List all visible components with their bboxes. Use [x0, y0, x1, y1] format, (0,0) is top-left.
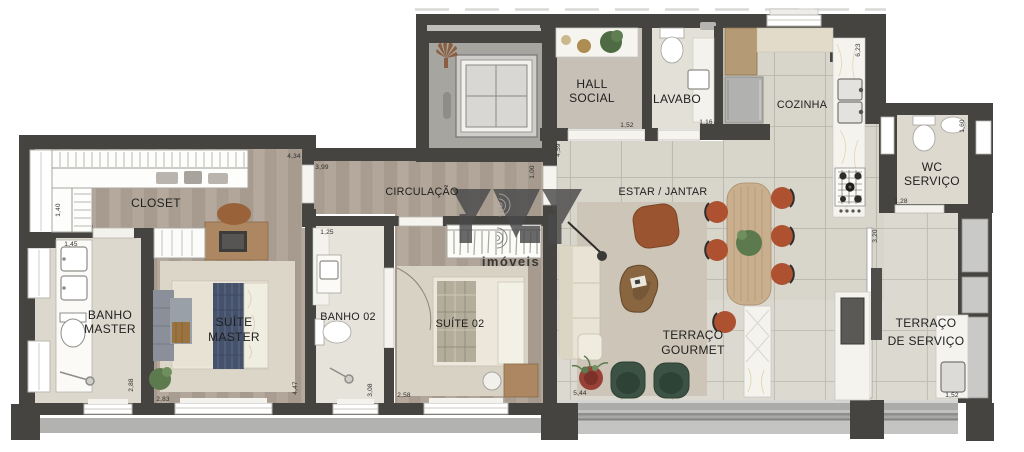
svg-text:DE SERVIÇO: DE SERVIÇO	[888, 334, 965, 348]
svg-text:GOURMET: GOURMET	[661, 343, 725, 357]
svg-text:4,34: 4,34	[287, 153, 301, 160]
svg-text:imóveis: imóveis	[482, 254, 540, 269]
svg-text:5,44: 5,44	[573, 390, 587, 397]
svg-text:2,88: 2,88	[128, 378, 135, 392]
svg-text:1,28: 1,28	[894, 198, 908, 205]
svg-text:TERRAÇO: TERRAÇO	[896, 316, 957, 330]
svg-text:1,52: 1,52	[620, 122, 634, 129]
svg-text:1,16: 1,16	[699, 119, 713, 126]
svg-text:2,58: 2,58	[397, 392, 411, 399]
svg-text:HALL: HALL	[576, 77, 607, 91]
svg-text:TERRAÇO: TERRAÇO	[663, 328, 724, 342]
svg-text:COZINHA: COZINHA	[777, 99, 828, 111]
svg-text:1,25: 1,25	[320, 229, 334, 236]
svg-text:4,59: 4,59	[555, 143, 562, 157]
svg-text:MASTER: MASTER	[84, 322, 136, 336]
svg-text:BANHO 02: BANHO 02	[320, 311, 375, 323]
svg-text:1,45: 1,45	[64, 241, 78, 248]
svg-text:BANHO: BANHO	[88, 308, 132, 322]
svg-text:3,20: 3,20	[872, 229, 879, 243]
svg-text:1,00: 1,00	[529, 165, 536, 179]
svg-text:SUÍTE 02: SUÍTE 02	[436, 317, 485, 330]
svg-text:1,40: 1,40	[55, 203, 62, 217]
svg-text:1,60: 1,60	[959, 119, 966, 133]
svg-text:3,08: 3,08	[367, 383, 374, 397]
svg-text:WC: WC	[922, 160, 943, 174]
svg-text:CLOSET: CLOSET	[131, 196, 181, 210]
svg-text:2,83: 2,83	[156, 396, 170, 403]
svg-text:4,47: 4,47	[292, 381, 299, 395]
svg-text:MASTER: MASTER	[208, 330, 260, 344]
svg-text:6,23: 6,23	[855, 43, 862, 57]
svg-text:LAVABO: LAVABO	[653, 92, 701, 106]
svg-text:1,52: 1,52	[945, 392, 959, 399]
svg-text:SOCIAL: SOCIAL	[569, 91, 615, 105]
svg-text:SUÍTE: SUÍTE	[216, 314, 253, 329]
svg-text:SERVIÇO: SERVIÇO	[904, 174, 960, 188]
svg-text:CIRCULAÇÃO: CIRCULAÇÃO	[385, 185, 458, 198]
svg-text:3,99: 3,99	[315, 164, 329, 171]
svg-text:ESTAR / JANTAR: ESTAR / JANTAR	[619, 186, 708, 198]
